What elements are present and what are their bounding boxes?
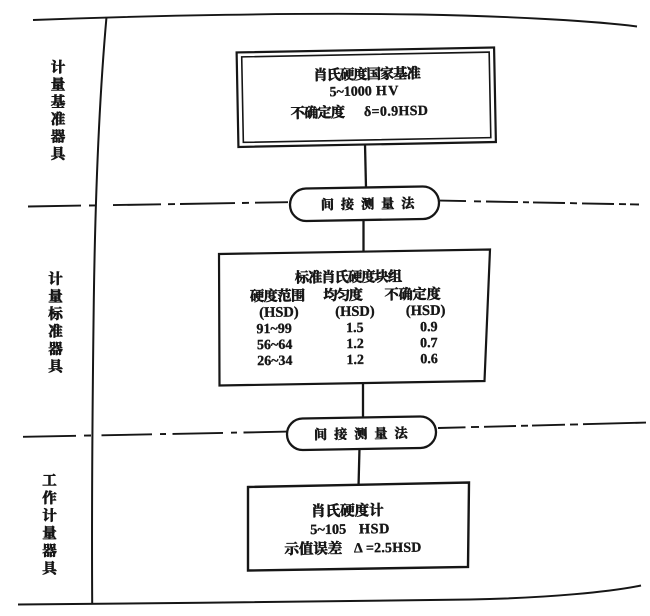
svg-text:1.2: 1.2 xyxy=(346,337,364,352)
svg-text:0.6: 0.6 xyxy=(420,352,438,367)
svg-text:5~1000: 5~1000 xyxy=(329,84,372,100)
svg-text:1.2: 1.2 xyxy=(346,353,364,368)
svg-text:26~34: 26~34 xyxy=(257,354,292,369)
svg-text:δ=0.9HSD: δ=0.9HSD xyxy=(364,104,429,120)
svg-text:(HSD): (HSD) xyxy=(335,304,375,320)
svg-text:Δ =2.5HSD: Δ =2.5HSD xyxy=(354,541,422,557)
svg-text:1.5: 1.5 xyxy=(346,321,364,336)
svg-text:91~99: 91~99 xyxy=(256,322,291,337)
svg-text:HSD: HSD xyxy=(359,521,390,537)
svg-text:0.9: 0.9 xyxy=(420,320,438,335)
svg-text:(HSD): (HSD) xyxy=(259,304,299,320)
svg-text:HV: HV xyxy=(376,84,400,99)
svg-text:(HSD): (HSD) xyxy=(406,303,446,319)
svg-text:5~105: 5~105 xyxy=(310,522,346,539)
svg-text:0.7: 0.7 xyxy=(420,336,438,351)
svg-text:56~64: 56~64 xyxy=(257,338,292,353)
